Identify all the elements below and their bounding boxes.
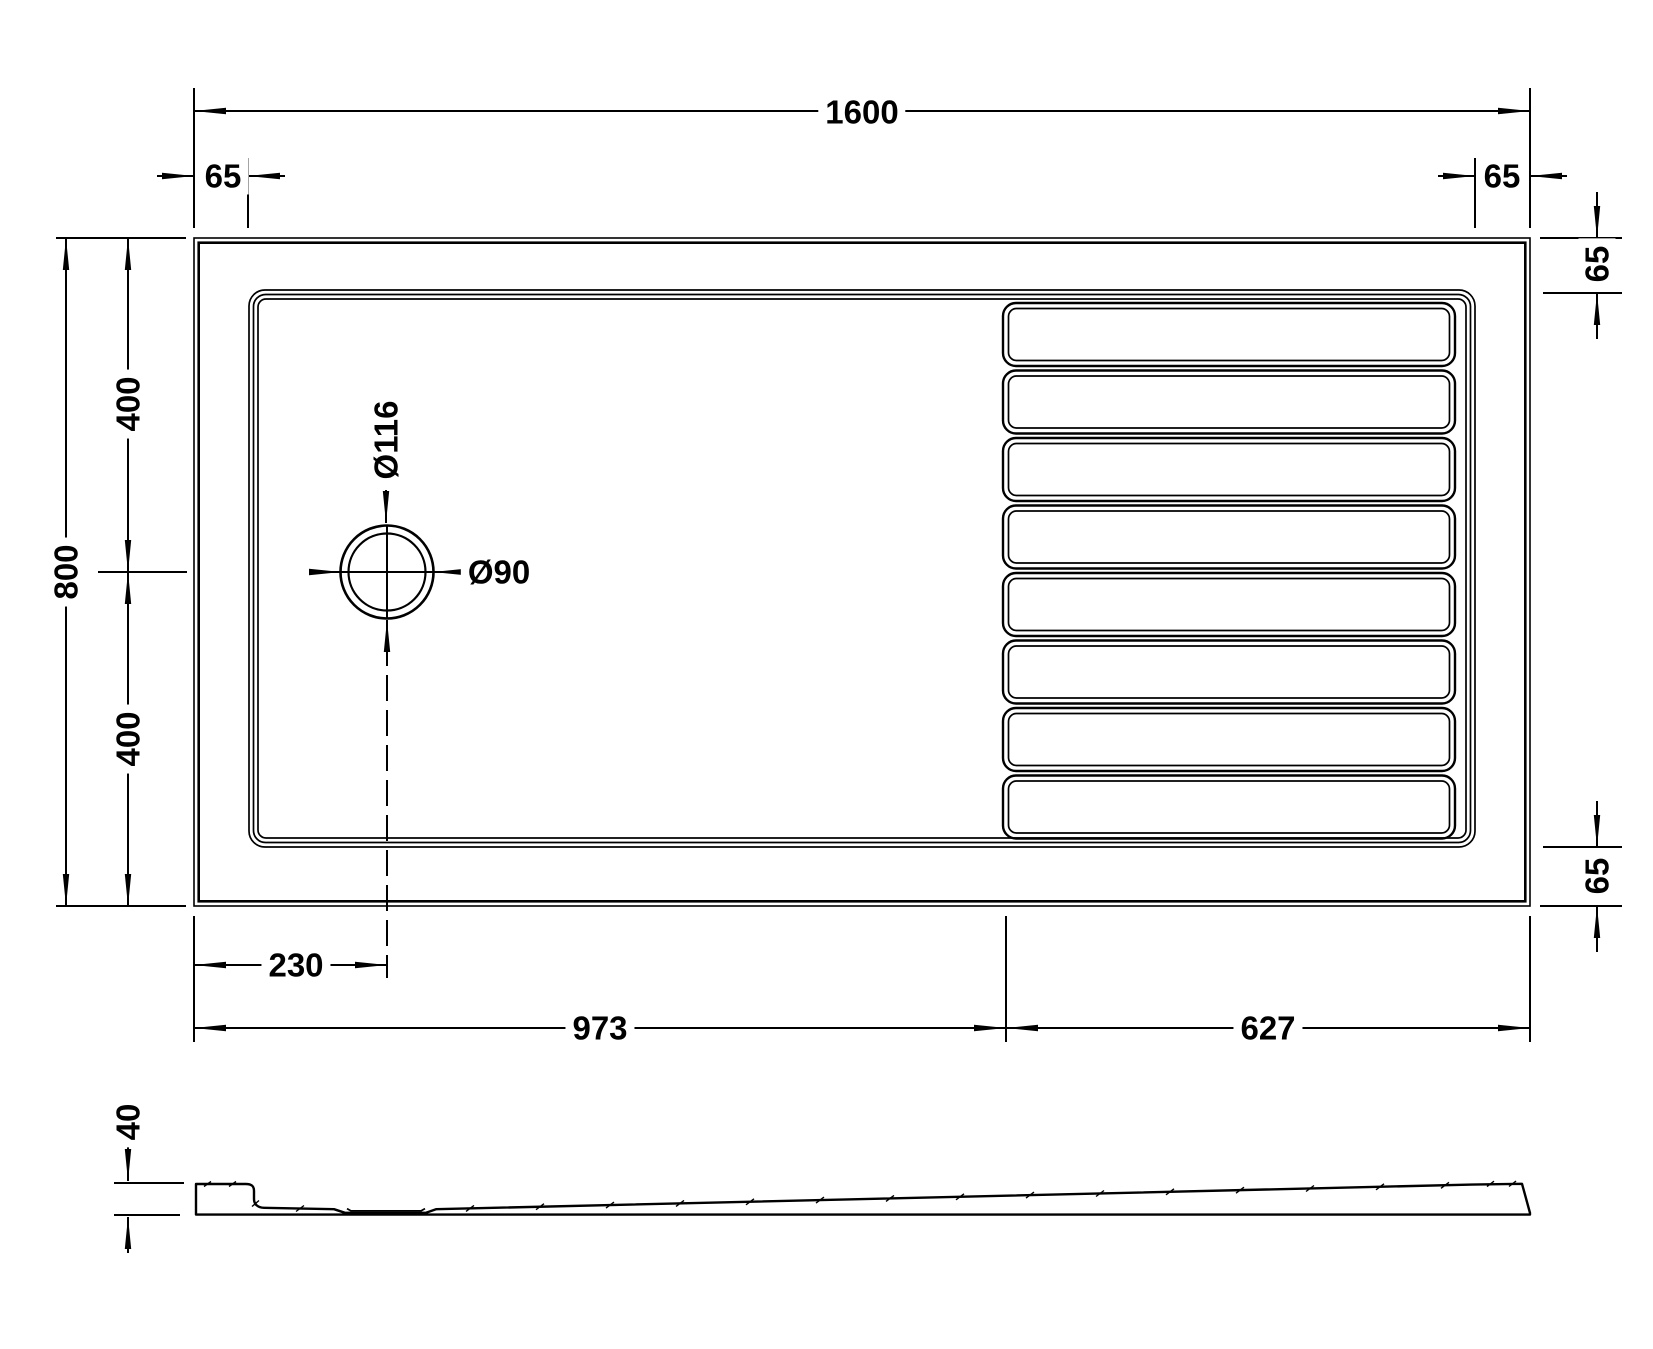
slat — [1003, 573, 1455, 636]
slat — [1003, 506, 1455, 569]
drawing-canvas — [0, 0, 1653, 1349]
dimension-waste — [315, 572, 459, 978]
dimensions — [56, 88, 1622, 1253]
dim-label-rim-top-right: 65 — [1579, 239, 1616, 290]
slat — [1003, 438, 1455, 501]
dim-label-depth-lower: 400 — [110, 704, 147, 773]
dim-label-rim-bottom-right: 65 — [1579, 851, 1616, 902]
slat — [1003, 371, 1455, 434]
dimension-tray-height — [114, 1146, 184, 1253]
dim-label-waste-outer-diameter: Ø116 — [368, 394, 405, 487]
mould-tick-marks — [204, 1181, 1516, 1211]
dim-label-overall-depth: 800 — [48, 537, 85, 606]
dim-label-waste-offset: 230 — [261, 947, 330, 984]
side-drain-plate — [347, 1209, 425, 1211]
dim-label-tray-height: 40 — [110, 1097, 147, 1148]
side-profile-outline — [196, 1184, 1530, 1215]
dim-label-ribbed-section: 627 — [1233, 1010, 1302, 1047]
dim-label-rim-right: 65 — [1477, 158, 1528, 195]
dim-label-rim-left: 65 — [198, 158, 249, 195]
side-view — [196, 1181, 1530, 1215]
technical-drawing-shower-tray: 1600 65 65 800 400 400 65 65 Ø116 Ø90 23… — [0, 0, 1653, 1349]
plan-view — [194, 238, 1530, 906]
anti-slip-slats — [1003, 303, 1455, 839]
dimension-sections — [194, 916, 1530, 1042]
dim-label-smooth-section: 973 — [565, 1010, 634, 1047]
dim-label-overall-width: 1600 — [818, 94, 905, 131]
slat — [1003, 708, 1455, 771]
dim-label-waste-diameter: Ø90 — [461, 554, 537, 591]
dim-label-depth-upper: 400 — [110, 369, 147, 438]
slat — [1003, 776, 1455, 839]
waste-drain — [341, 526, 434, 619]
slat — [1003, 641, 1455, 704]
slat — [1003, 303, 1455, 366]
